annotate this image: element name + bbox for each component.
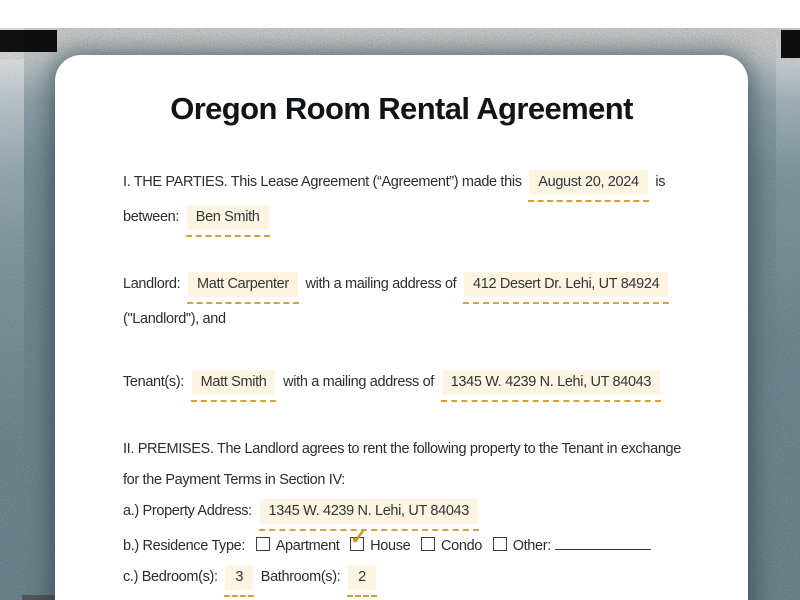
- document-body: I. THE PARTIES. This Lease Agreement (“A…: [123, 167, 731, 597]
- residence-option-condo: Condo: [414, 538, 482, 554]
- property-address-label: a.) Property Address:: [123, 503, 252, 519]
- tenant-line: Tenant(s): Matt Smith with a mailing add…: [123, 367, 731, 402]
- parties-line-1: I. THE PARTIES. This Lease Agreement (“A…: [123, 167, 731, 202]
- tenant-name-field[interactable]: Matt Smith: [191, 367, 277, 402]
- bedrooms-label: c.) Bedroom(s):: [123, 569, 218, 585]
- parties-intro-suffix: is: [655, 174, 665, 190]
- residence-option-house: ✓House: [343, 538, 410, 554]
- property-address-field[interactable]: 1345 W. 4239 N. Lehi, UT 84043: [259, 496, 479, 531]
- between-label: between:: [123, 209, 179, 225]
- parties-intro-text: I. THE PARTIES. This Lease Agreement (“A…: [123, 174, 522, 190]
- other-label: Other:: [513, 538, 551, 554]
- premises-intro-text-1: II. PREMISES. The Landlord agrees to ren…: [123, 441, 681, 457]
- premises-intro-text-2: for the Payment Terms in Section IV:: [123, 472, 345, 488]
- landlord-designation-line: ("Landlord"), and: [123, 304, 731, 335]
- between-name-field[interactable]: Ben Smith: [186, 202, 270, 237]
- rooms-line: c.) Bedroom(s): 3 Bathroom(s): 2: [123, 562, 731, 597]
- premises-intro-line-1: II. PREMISES. The Landlord agrees to ren…: [123, 434, 731, 465]
- residence-option-apartment: Apartment: [249, 538, 340, 554]
- residence-type-line: b.) Residence Type: Apartment ✓House Con…: [123, 531, 731, 562]
- document-title: Oregon Room Rental Agreement: [55, 91, 748, 127]
- bathrooms-label: Bathroom(s):: [261, 569, 341, 585]
- apartment-label: Apartment: [276, 538, 340, 554]
- agreement-date-field[interactable]: August 20, 2024: [528, 167, 648, 202]
- checkbox-other[interactable]: [493, 537, 507, 551]
- screen: Oregon Room Rental Agreement I. THE PART…: [0, 0, 800, 600]
- document-page: Oregon Room Rental Agreement I. THE PART…: [55, 55, 748, 600]
- premises-intro-line-2: for the Payment Terms in Section IV:: [123, 465, 731, 496]
- checkbox-house[interactable]: ✓: [350, 537, 364, 551]
- landlord-label: Landlord:: [123, 276, 180, 292]
- landlord-address-connector: with a mailing address of: [306, 276, 457, 292]
- residence-type-label: b.) Residence Type:: [123, 538, 245, 554]
- checkmark-icon: ✓: [350, 528, 366, 548]
- tenant-address-connector: with a mailing address of: [283, 374, 434, 390]
- landlord-line: Landlord: Matt Carpenter with a mailing …: [123, 269, 731, 304]
- parties-line-2: between: Ben Smith: [123, 202, 731, 237]
- landlord-designation-text: ("Landlord"), and: [123, 311, 226, 327]
- bathrooms-field[interactable]: 2: [347, 562, 377, 597]
- residence-option-other: Other:: [486, 538, 651, 554]
- other-blank-underline[interactable]: [555, 536, 651, 550]
- checkbox-condo[interactable]: [421, 537, 435, 551]
- tenant-label: Tenant(s):: [123, 374, 184, 390]
- checkbox-apartment[interactable]: [256, 537, 270, 551]
- landlord-address-field[interactable]: 412 Desert Dr. Lehi, UT 84924: [463, 269, 669, 304]
- landlord-name-field[interactable]: Matt Carpenter: [187, 269, 299, 304]
- tenant-address-field[interactable]: 1345 W. 4239 N. Lehi, UT 84043: [441, 367, 661, 402]
- bedrooms-field[interactable]: 3: [224, 562, 254, 597]
- property-address-line: a.) Property Address: 1345 W. 4239 N. Le…: [123, 496, 731, 531]
- house-label: House: [370, 538, 410, 554]
- condo-label: Condo: [441, 538, 482, 554]
